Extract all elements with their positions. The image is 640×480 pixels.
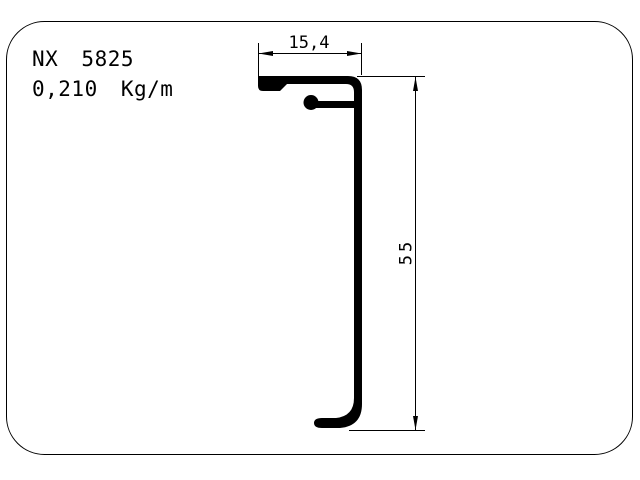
drawing-sheet: NX 5825 0,210 Kg/m 15,4 55 [0,0,640,480]
profile-outline [258,76,362,428]
profile-code-label: NX 5825 [32,47,134,71]
width-dimension-label: 15,4 [289,33,330,53]
profile-snap-lip [311,101,354,108]
profile-weight-label: 0,210 Kg/m [32,77,173,101]
profile-cross-section [258,76,362,428]
height-arrow-top [413,77,418,91]
width-arrow-left [259,51,274,56]
height-dimension-label: 55 [397,239,417,265]
width-arrow-right [347,51,362,56]
height-arrow-bottom [413,416,418,430]
